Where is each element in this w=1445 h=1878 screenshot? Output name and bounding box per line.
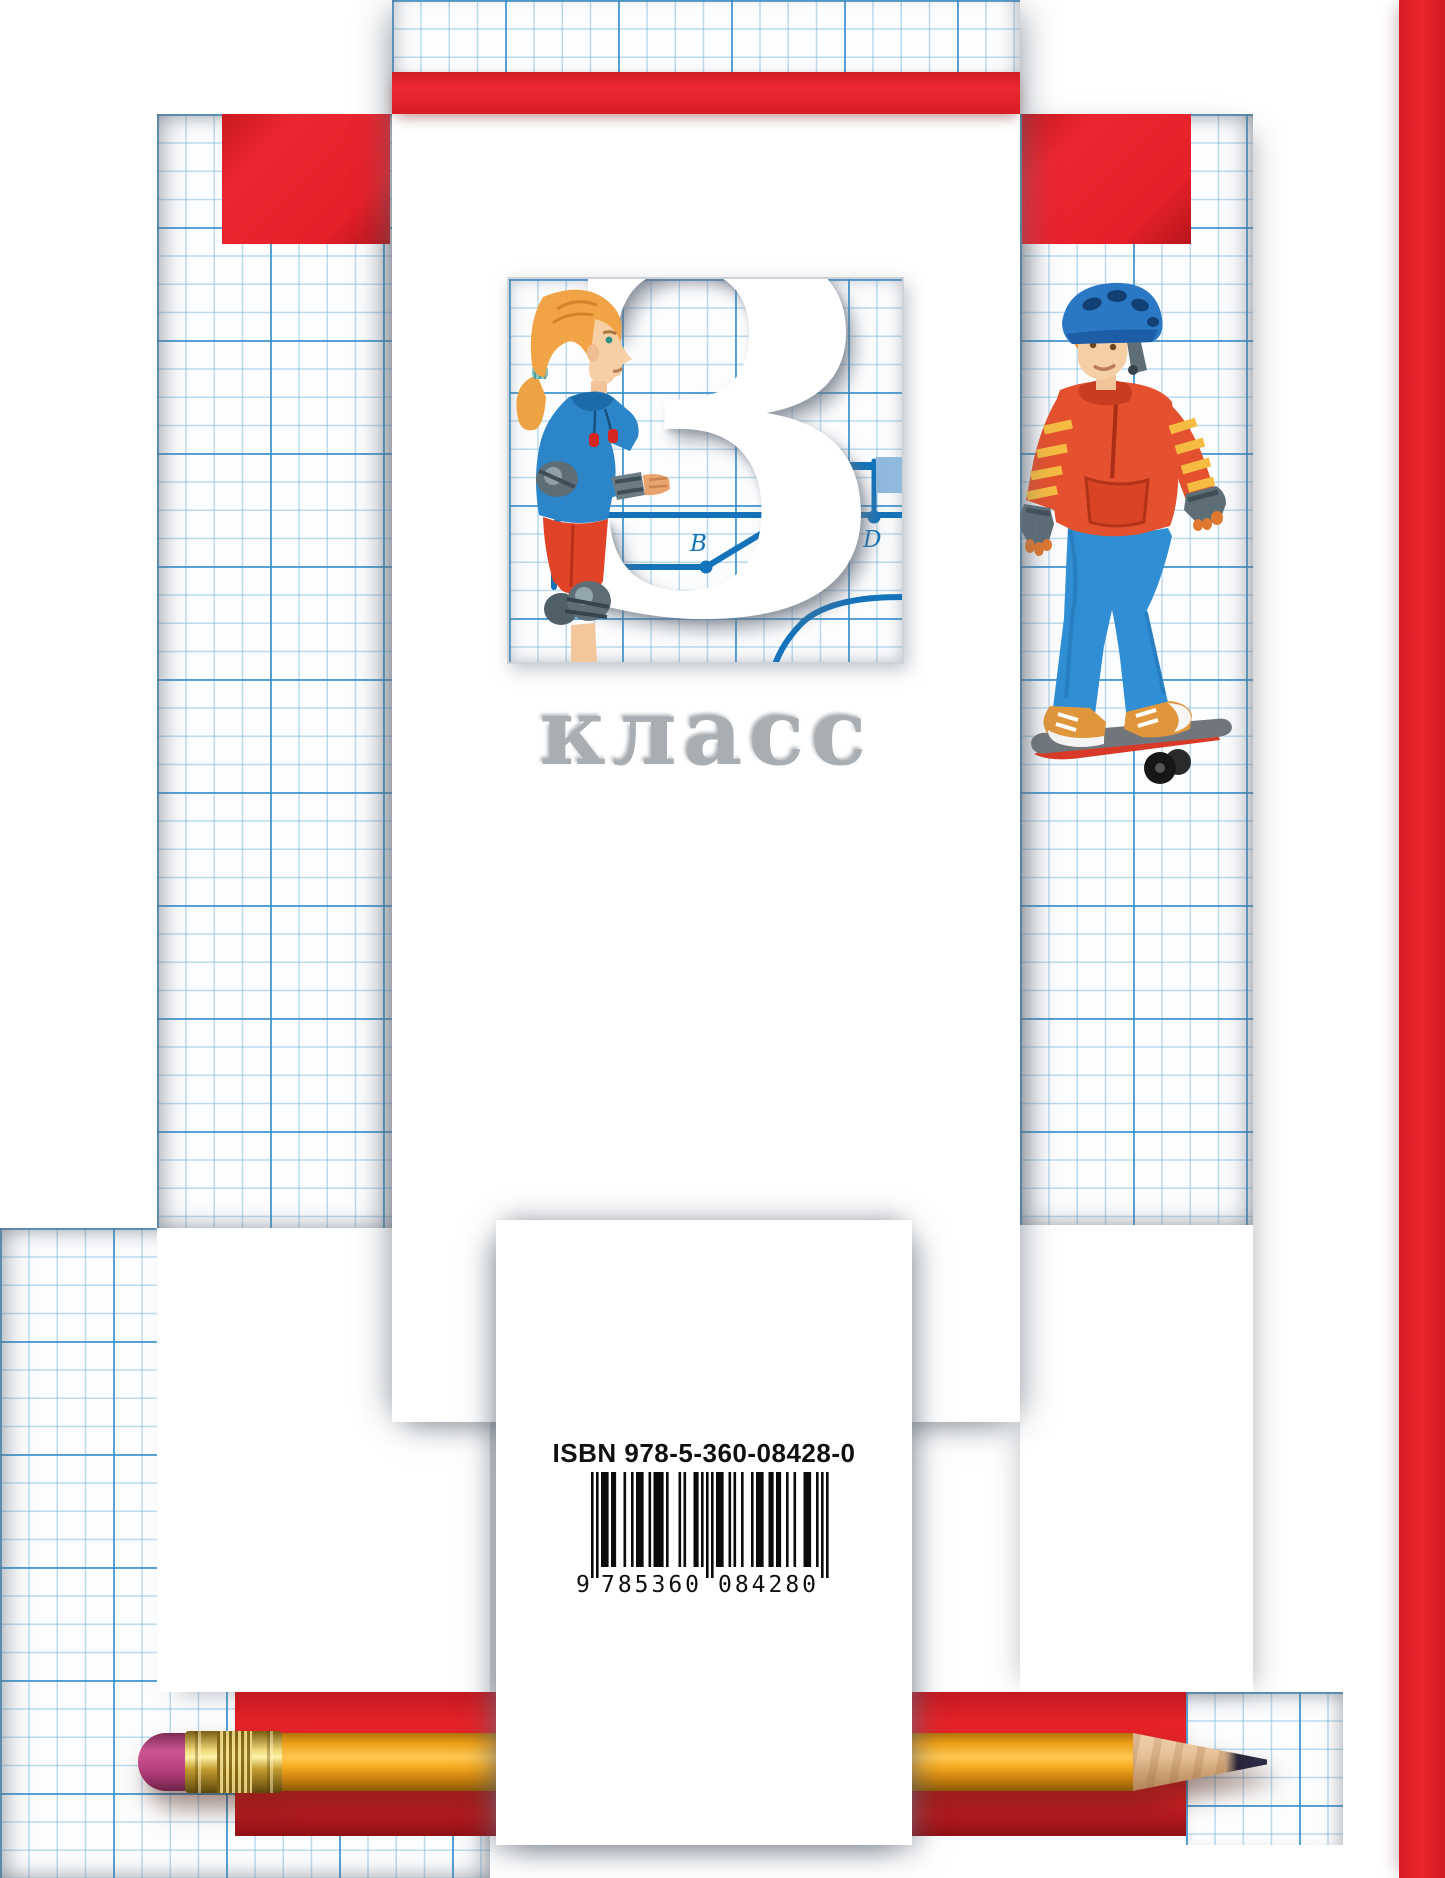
barcode-digit-first: 9	[576, 1572, 590, 1598]
girl-face	[587, 319, 632, 399]
left-graph-column	[157, 114, 393, 1228]
boy-skateboarder-illustration	[1020, 278, 1235, 790]
ean-barcode: 9 785360 084280	[576, 1472, 832, 1607]
pencil-tip	[1133, 1733, 1267, 1791]
barcode-digits-group2: 084280	[718, 1572, 816, 1598]
right-red-square	[1022, 114, 1191, 244]
left-red-square	[222, 114, 390, 244]
right-column	[1020, 114, 1253, 1692]
isbn-panel: ISBN 978-5-360-08428-0 9 785360 084280	[496, 1220, 912, 1845]
pencil-ferrule	[185, 1731, 282, 1793]
top-graph-block	[392, 0, 1020, 74]
knee-pad-icons	[544, 581, 611, 625]
pencil-ferrule-ridges	[217, 1731, 252, 1793]
top-red-bar	[392, 72, 1020, 114]
girl-rollerskater-illustration	[509, 279, 902, 662]
girl-pants	[543, 517, 608, 593]
book-back-cover: A B D 3	[0, 0, 1445, 1878]
pencil-eraser	[138, 1733, 188, 1791]
barcode-digits-group1: 785360	[601, 1572, 699, 1598]
grade-word: класс	[392, 678, 1020, 786]
right-red-sidebar	[1399, 0, 1445, 1878]
isbn-label: ISBN 978-5-360-08428-0	[496, 1438, 912, 1469]
barcode-bars	[591, 1472, 829, 1578]
boy-jeans	[1053, 526, 1172, 721]
girl-leg	[571, 623, 597, 662]
cover-illustration-frame: A B D 3	[507, 277, 904, 664]
boy-hoodie	[1051, 380, 1179, 536]
